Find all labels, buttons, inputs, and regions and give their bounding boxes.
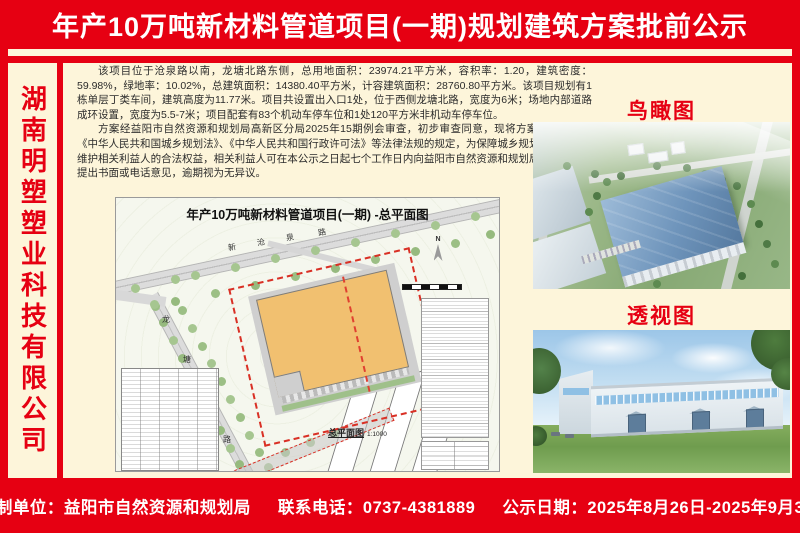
road-top-char-4: 路 — [317, 226, 327, 238]
page-title: 年产10万吨新材料管道项目(一期)规划建筑方案批前公示 — [52, 5, 748, 44]
aerial-view-image — [533, 122, 790, 289]
drawing-caption-label: 总平面图 — [328, 428, 364, 438]
top-banner: 年产10万吨新材料管道项目(一期)规划建筑方案批前公示 — [0, 0, 800, 49]
perspective-building-gable — [559, 370, 593, 434]
perspective-gable-window — [563, 388, 589, 395]
notice-body-text: 该项目位于沧泉路以南，龙塘北路东侧，总用地面积：23974.21平方米，容积率：… — [77, 64, 592, 181]
paragraph-review-statement: 方案经益阳市自然资源和规划局高新区分局2025年15期例会审查，初步审查同意，现… — [77, 122, 592, 180]
north-label: N — [430, 236, 446, 243]
north-arrow: N — [430, 236, 446, 261]
aerial-view-label: 鸟瞰图 — [533, 95, 790, 125]
road-left-char-1: 龙 — [162, 314, 170, 325]
perspective-door — [628, 414, 646, 434]
legend-block — [421, 441, 489, 470]
site-plan-drawing: 年产10万吨新材料管道项目(一期) -总平面图 新 沧 泉 路 龙 塘 北 路 — [115, 197, 500, 472]
road-top-char-3: 泉 — [285, 231, 295, 243]
site-plan-title: 年产10万吨新材料管道项目(一期) -总平面图 — [116, 204, 499, 223]
paragraph-project-overview: 该项目位于沧泉路以南，龙塘北路东侧，总用地面积：23974.21平方米，容积率：… — [77, 64, 592, 122]
publicity-dates: 公示日期：2025年8月26日-2025年9月3日 — [502, 494, 800, 518]
road-top-char-1: 新 — [227, 241, 237, 253]
company-name: 湖南明塑塑业科技有限公司 — [20, 85, 46, 457]
company-column: 湖南明塑塑业科技有限公司 — [8, 63, 57, 478]
perspective-door — [692, 411, 710, 431]
perspective-car — [565, 434, 574, 438]
perspective-building-facade — [591, 378, 783, 437]
economic-indicator-table — [121, 368, 219, 471]
perspective-view-label: 透视图 — [533, 300, 790, 330]
notice-board: 年产10万吨新材料管道项目(一期)规划建筑方案批前公示 湖南明塑塑业科技有限公司… — [0, 0, 800, 533]
scale-bar — [402, 284, 462, 290]
vertical-red-divider — [57, 63, 63, 478]
horizontal-red-rule — [0, 56, 800, 63]
bottom-banner: 监制单位：益阳市自然资源和规划局 联系电话：0737-4381889 公示日期：… — [0, 478, 800, 533]
contact-phone: 联系电话：0737-4381889 — [278, 494, 475, 518]
road-left-char-4: 路 — [223, 434, 231, 445]
drawing-scale: 1:1000 — [367, 431, 387, 438]
road-top-char-2: 沧 — [256, 236, 266, 248]
perspective-view-image — [533, 330, 790, 473]
perspective-car — [551, 432, 560, 436]
drawing-caption: 总平面图1:1000 — [328, 426, 387, 439]
perspective-door — [746, 409, 764, 429]
road-left-char-2: 塘 — [183, 354, 191, 365]
north-arrow-icon — [434, 244, 443, 261]
design-notes-block — [421, 298, 489, 438]
supervising-unit: 监制单位：益阳市自然资源和规划局 — [0, 494, 251, 518]
perspective-window-ribbon — [595, 388, 779, 405]
